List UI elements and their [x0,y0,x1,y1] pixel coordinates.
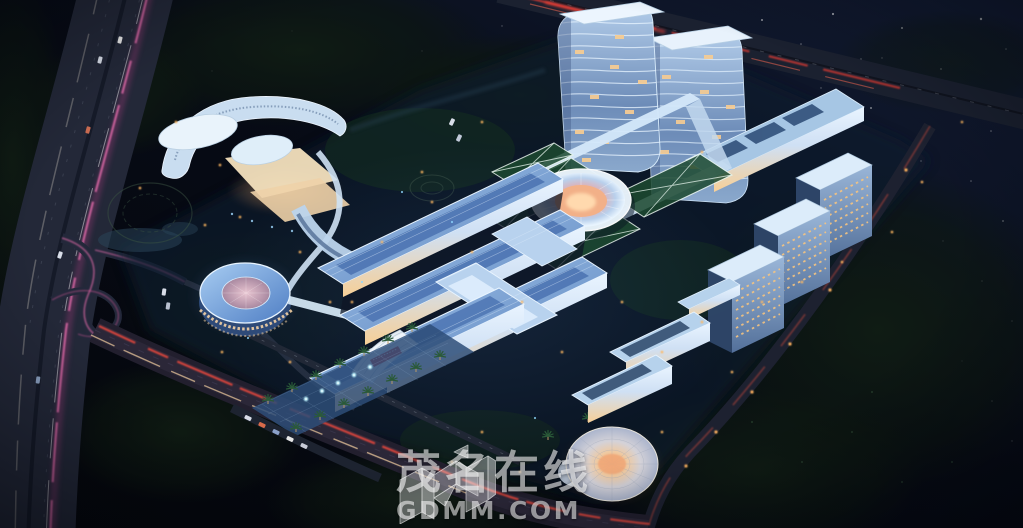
scene-rendering [0,0,1023,528]
rendering-image: 茂名在线 GDMM.COM [0,0,1023,528]
vignette [0,0,1023,528]
